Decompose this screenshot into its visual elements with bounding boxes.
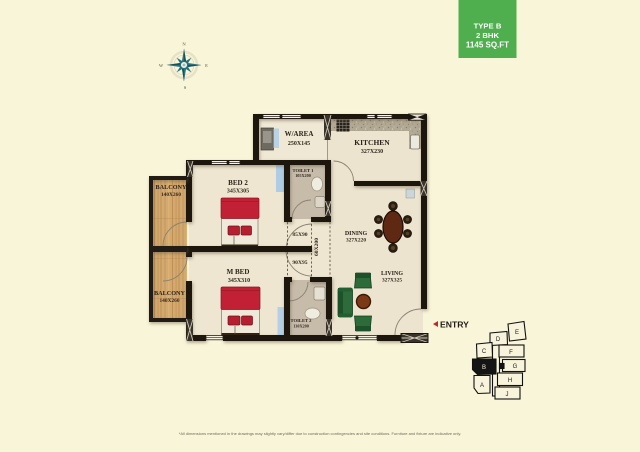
svg-text:F: F bbox=[509, 350, 513, 356]
svg-text:D: D bbox=[496, 337, 501, 343]
svg-text:1145 SQ.FT: 1145 SQ.FT bbox=[466, 41, 509, 50]
svg-text:C: C bbox=[482, 349, 487, 355]
svg-text:85X90: 85X90 bbox=[292, 232, 307, 238]
svg-text:327X220: 327X220 bbox=[346, 238, 366, 244]
svg-text:ENTRY: ENTRY bbox=[440, 320, 469, 330]
svg-text:90X95: 90X95 bbox=[292, 260, 307, 266]
svg-text:327X230: 327X230 bbox=[361, 149, 383, 155]
svg-text:DINING: DINING bbox=[345, 231, 368, 237]
svg-text:BED 2: BED 2 bbox=[228, 179, 248, 187]
svg-text:TOILET 2: TOILET 2 bbox=[291, 318, 313, 323]
svg-text:E: E bbox=[205, 63, 208, 68]
svg-text:A: A bbox=[480, 383, 484, 389]
svg-text:345X305: 345X305 bbox=[227, 189, 249, 195]
svg-text:W/AREA: W/AREA bbox=[285, 130, 314, 138]
svg-text:250X145: 250X145 bbox=[288, 141, 310, 147]
svg-text:BALCONY: BALCONY bbox=[154, 290, 185, 297]
svg-text:B: B bbox=[482, 365, 486, 371]
svg-text:J: J bbox=[506, 392, 509, 398]
svg-text:345X310: 345X310 bbox=[228, 278, 250, 284]
svg-text:2 BHK: 2 BHK bbox=[476, 31, 500, 40]
svg-text:KITCHEN: KITCHEN bbox=[354, 138, 390, 147]
svg-text:H: H bbox=[508, 378, 512, 384]
svg-text:S: S bbox=[184, 85, 187, 90]
svg-text:140X260: 140X260 bbox=[161, 192, 181, 198]
svg-text:LIVING: LIVING bbox=[381, 271, 403, 277]
svg-text:M BED: M BED bbox=[227, 268, 250, 276]
svg-text:*All dimensions mentioned in t: *All dimensions mentioned in the drawing… bbox=[179, 431, 461, 436]
svg-text:BALCONY: BALCONY bbox=[156, 184, 187, 191]
svg-text:140X260: 140X260 bbox=[159, 298, 179, 304]
svg-text:60X200: 60X200 bbox=[314, 238, 320, 256]
svg-text:TYPE B: TYPE B bbox=[474, 22, 502, 31]
svg-text:E: E bbox=[515, 330, 519, 336]
svg-text:327X325: 327X325 bbox=[382, 278, 402, 284]
svg-text:W: W bbox=[159, 63, 164, 68]
svg-text:130X200: 130X200 bbox=[293, 324, 309, 329]
svg-text:105X200: 105X200 bbox=[295, 173, 311, 178]
svg-text:G: G bbox=[513, 364, 518, 370]
